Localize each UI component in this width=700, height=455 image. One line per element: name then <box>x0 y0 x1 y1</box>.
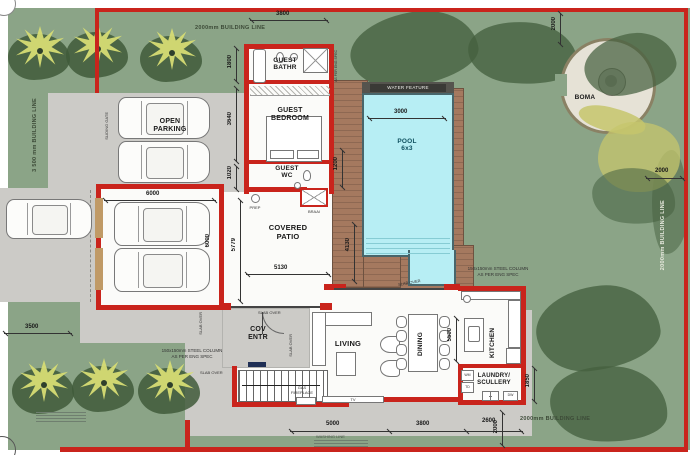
guest-bathroom-label: GUEST BATHR <box>262 57 308 72</box>
steel-column-side-note: AS PER ENG SPEC <box>334 50 338 82</box>
pillow <box>270 150 294 159</box>
pool-step <box>366 243 450 244</box>
pool-width-dim: 3000 <box>394 109 407 115</box>
prep-label: PREP <box>246 205 264 210</box>
car <box>118 141 210 183</box>
tree <box>72 358 136 414</box>
dim-line <box>236 48 237 82</box>
wall-segment <box>244 44 249 194</box>
toilet <box>303 170 311 181</box>
fridge <box>506 348 521 364</box>
dim-line <box>240 200 241 302</box>
sliding-gate-note: SLIDING GATE <box>104 112 109 140</box>
dining-chair <box>396 330 407 342</box>
wall-segment <box>219 184 224 310</box>
wall-stub <box>219 303 231 310</box>
gas-fireplace <box>296 397 316 405</box>
building-line-right-label: 2000mm BUILDING LINE <box>660 200 666 270</box>
dim-dining-width: 3800 <box>416 421 429 427</box>
steel-column-note: 150x150mm STEEL COLUMN AS PER ENG SPEC <box>462 266 534 277</box>
tree <box>8 26 72 82</box>
dining-chair <box>439 344 450 356</box>
dining-chair <box>439 316 450 328</box>
pool-step <box>366 248 450 249</box>
dim-patio-depth: 5779 <box>231 238 237 251</box>
coffee-table <box>336 352 356 376</box>
dim-patio-width: 5130 <box>274 265 287 271</box>
patio-sliding-doors <box>224 306 326 308</box>
dim-living-width: 5000 <box>326 421 339 427</box>
garage-door <box>95 248 103 290</box>
dim-line <box>456 318 457 362</box>
boundary-bottom <box>60 447 688 452</box>
pool-width-dim-line <box>368 118 446 119</box>
dim-bottom-offset: 2000 <box>493 420 499 433</box>
prep-bowl <box>463 295 471 303</box>
tree <box>140 28 204 84</box>
pillow <box>297 150 319 159</box>
dim-guest-bath: 1800 <box>227 55 233 68</box>
dim-deck-upper: 1200 <box>333 157 339 170</box>
boundary-left <box>95 8 99 93</box>
pool-step <box>366 238 450 239</box>
tree <box>12 360 76 416</box>
dim-guest-bed: 3640 <box>227 112 233 125</box>
dim-road-offset: 3500 <box>25 324 38 330</box>
laundry-label: LAUNDRY/ SCULLERY <box>468 373 520 387</box>
dim-top-width: 3800 <box>276 11 289 17</box>
dim-line <box>236 166 237 190</box>
dim-line <box>502 412 503 446</box>
washing-line <box>36 412 86 424</box>
boma-opening <box>555 74 567 96</box>
gas-fireplace-label: GAS FIREPLACE <box>284 385 320 395</box>
slab-over-note: SLAB OVER <box>288 334 293 357</box>
hob <box>468 326 480 342</box>
water-feature-label: WATER FEATURE <box>370 84 446 92</box>
wall-segment <box>96 305 224 310</box>
pool-step <box>366 253 450 254</box>
dim-dining-depth: 5500 <box>447 328 453 341</box>
living-label: LIVING <box>325 340 371 349</box>
dim-deck-lower: 4130 <box>345 238 351 251</box>
sofa <box>312 312 326 366</box>
covered-entrance-label: COV ENTR <box>236 326 280 342</box>
car <box>114 202 210 246</box>
boma-label: BOMA <box>570 94 600 101</box>
dim-laundry-depth: 1850 <box>525 374 531 387</box>
covered-patio-label: COVERED PATIO <box>253 224 323 241</box>
dim-line <box>646 178 684 179</box>
wall-segment-dark <box>248 362 266 367</box>
car <box>114 248 210 292</box>
boundary-top <box>95 8 688 12</box>
wall-segment <box>232 366 237 407</box>
dining-chair <box>396 316 407 328</box>
washing-line <box>314 440 368 449</box>
laundry-sink-cross <box>489 392 492 400</box>
dim-garage-width: 6000 <box>146 191 159 197</box>
wall-stub <box>320 303 332 310</box>
building-line-left-label: 3 500 mm BUILDING LINE <box>32 98 38 172</box>
car <box>6 199 92 239</box>
dim-right-offset: 2000 <box>655 168 668 174</box>
dim-boma-offset: 2000 <box>551 17 557 30</box>
dim-line <box>560 13 561 45</box>
dim-line <box>290 431 523 432</box>
dim-line <box>4 333 72 334</box>
dining-chair <box>396 358 407 370</box>
guest-wc-label: GUEST WC <box>270 165 304 180</box>
dim-line <box>236 88 237 162</box>
boundary-right <box>684 8 688 452</box>
slab-over-note: SLAB OVER <box>258 310 281 315</box>
garage-door <box>95 198 103 238</box>
slab-over-note: SLAB OVER <box>198 312 203 335</box>
dishwasher-label: DW <box>504 393 517 397</box>
dining-label: DINING <box>417 326 424 362</box>
braai-label: BRAAI <box>301 209 327 214</box>
dim-line <box>354 224 355 282</box>
building-line-bottom-label: 2000mm BUILDING LINE <box>520 416 590 422</box>
slab-over-note: SLAB OVER <box>200 370 223 375</box>
site-plan: BOMA WATER FEATURE 3000 POOL 6x3 GUEST B… <box>0 0 700 455</box>
wall-segment <box>96 184 224 189</box>
boundary-stub <box>185 420 190 452</box>
dim-guest-wc: 1020 <box>227 166 233 179</box>
open-parking-label: OPEN PARKING <box>135 118 205 134</box>
guest-bedroom-label: GUEST BEDROOM <box>255 107 325 123</box>
pool-label: POOL 6x3 <box>381 138 433 153</box>
dim-line <box>534 368 535 402</box>
dim-garage-depth: 6000 <box>205 234 211 247</box>
dim-line <box>246 274 330 275</box>
kitchen-label: KITCHEN <box>489 318 496 368</box>
dining-chair <box>439 358 450 370</box>
dining-chair <box>396 344 407 356</box>
dim-line <box>104 200 216 201</box>
building-line-top-label: 2000mm BUILDING LINE <box>195 25 265 31</box>
tree <box>138 360 202 416</box>
cupboard <box>250 86 330 96</box>
kitchen-counter <box>508 300 521 348</box>
living-sliding-doors <box>334 288 446 290</box>
prep-bowl <box>251 194 260 203</box>
braai <box>300 188 328 207</box>
dim-line <box>342 150 343 188</box>
washing-line-label: WASHING LINE <box>316 434 345 439</box>
dim-line <box>250 20 328 21</box>
steel-column-note: 150x150mm STEEL COLUMN AS PER ENG SPEC <box>150 348 234 359</box>
tv-label: TV <box>348 397 358 402</box>
